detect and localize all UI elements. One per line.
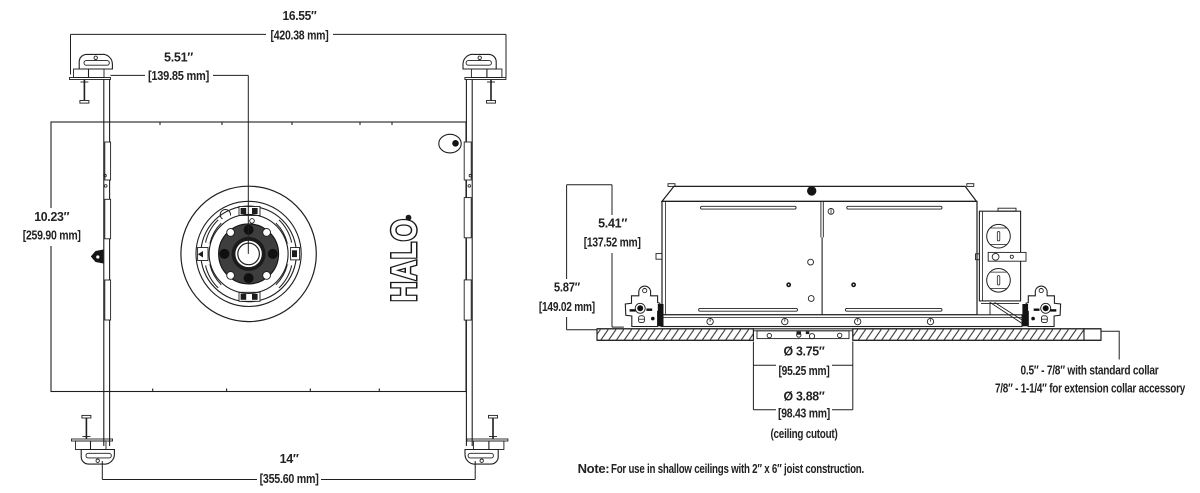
svg-text:7/8″ - 1-1/4″ for extension co: 7/8″ - 1-1/4″ for extension collar acces… <box>995 380 1186 395</box>
svg-text:[139.85 mm]: [139.85 mm] <box>148 68 209 83</box>
svg-text:5.51″: 5.51″ <box>164 49 193 64</box>
svg-text:[137.52 mm]: [137.52 mm] <box>584 234 641 249</box>
svg-text:Note:: Note: <box>578 461 610 476</box>
svg-text:(ceiling cutout): (ceiling cutout) <box>771 426 838 441</box>
svg-text:[420.38 mm]: [420.38 mm] <box>271 28 329 43</box>
svg-text:Ø 3.88″: Ø 3.88″ <box>784 388 825 403</box>
svg-text:[95.25 mm]: [95.25 mm] <box>779 363 830 378</box>
svg-text:[149.02 mm]: [149.02 mm] <box>539 299 595 314</box>
svg-text:14″: 14″ <box>280 451 299 466</box>
svg-text:5.41″: 5.41″ <box>598 216 627 231</box>
svg-text:5.87″: 5.87″ <box>554 280 580 295</box>
svg-text:10.23″: 10.23″ <box>34 209 69 224</box>
svg-text:Ø 3.75″: Ø 3.75″ <box>784 344 825 359</box>
svg-text:HALO: HALO <box>384 219 423 302</box>
svg-text:For use in shallow ceilings wi: For use in shallow ceilings with 2″ x 6″… <box>611 461 864 476</box>
svg-text:16.55″: 16.55″ <box>283 8 317 23</box>
svg-text:[259.90 mm]: [259.90 mm] <box>23 228 81 243</box>
svg-text:[98.43 mm]: [98.43 mm] <box>778 406 830 421</box>
svg-text:[355.60 mm]: [355.60 mm] <box>260 471 319 486</box>
svg-text:0.5″ - 7/8″ with standard coll: 0.5″ - 7/8″ with standard collar <box>1021 363 1159 378</box>
